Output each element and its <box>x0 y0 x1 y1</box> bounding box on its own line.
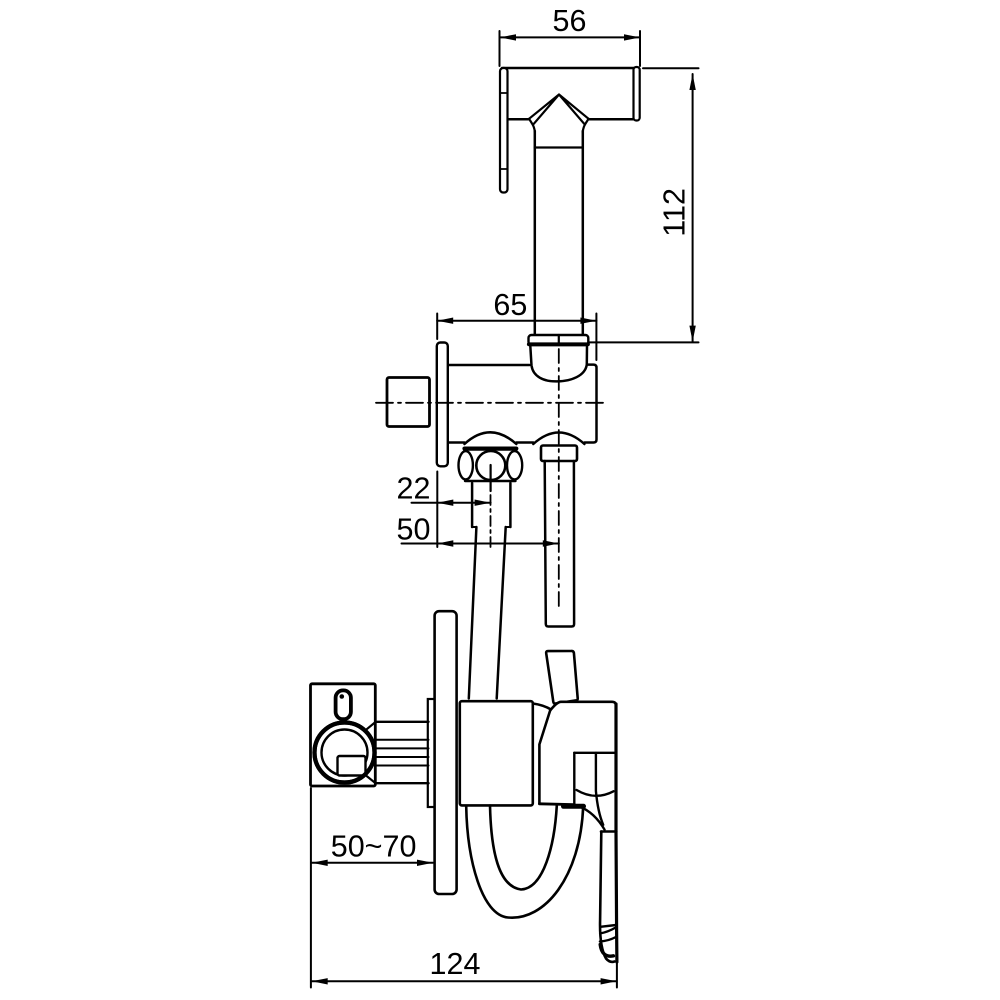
svg-text:50: 50 <box>397 512 431 546</box>
svg-text:124: 124 <box>430 947 481 981</box>
svg-text:22: 22 <box>397 472 431 506</box>
svg-text:50~70: 50~70 <box>331 830 417 864</box>
svg-text:65: 65 <box>493 288 527 322</box>
svg-text:112: 112 <box>658 188 692 237</box>
svg-text:56: 56 <box>553 4 587 38</box>
